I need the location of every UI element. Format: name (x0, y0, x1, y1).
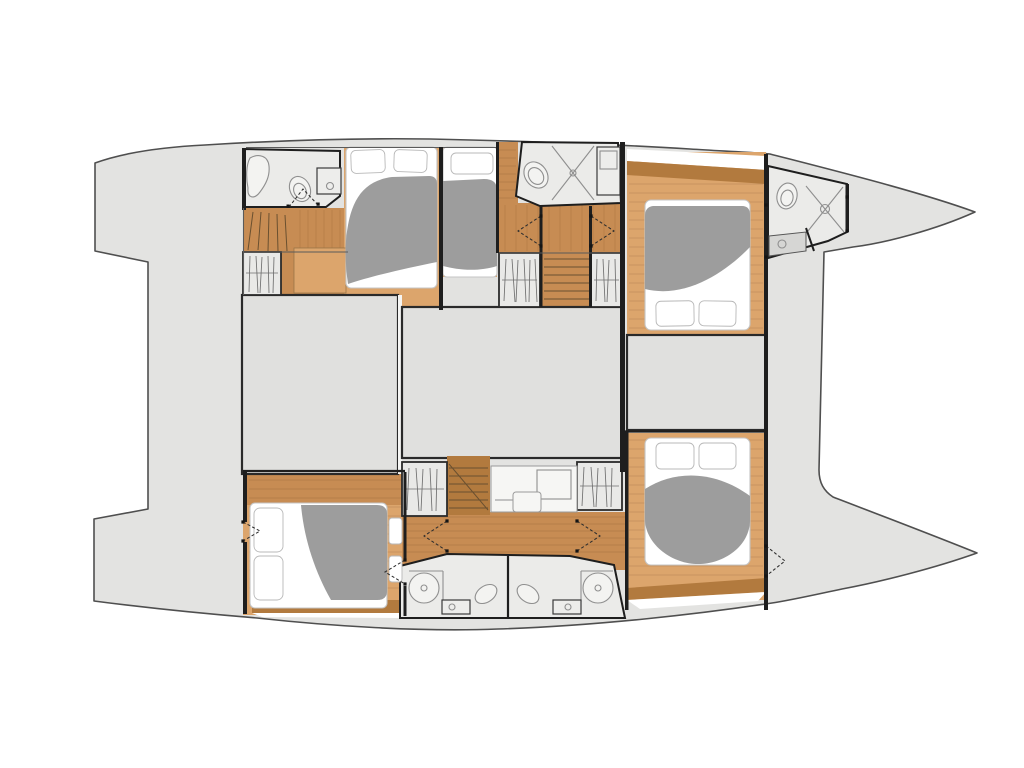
port-forward-cabin-bed (645, 200, 750, 330)
pillow (254, 556, 283, 600)
saloon-block-left (242, 295, 398, 474)
port-aft-chest (294, 248, 346, 293)
sink-icon (442, 600, 470, 614)
port-guest-cabin-1-bed (346, 147, 437, 288)
starboard-wardrobe-c (402, 462, 447, 516)
pillow (656, 301, 694, 327)
port-corridor-floor (497, 142, 518, 203)
sink-icon (317, 168, 341, 194)
port-wardrobe-b (591, 253, 622, 307)
starboard-forward-cabin-bed (645, 438, 750, 565)
pillow (351, 149, 386, 173)
sink-icon (553, 600, 581, 614)
vanity-desk (491, 466, 577, 512)
floor-plan-svg (0, 0, 1024, 768)
bedside-shelf (389, 518, 402, 544)
stool (513, 492, 541, 512)
port-cabin2-aft-floor (443, 277, 497, 310)
port-guest-cabin-2-bed (443, 147, 497, 277)
starboard-wardrobe-d (577, 462, 622, 510)
duvet (443, 179, 497, 270)
port-mid-bathroom (516, 142, 621, 206)
starboard-companionway-stairs (447, 456, 490, 515)
hull-inner-wall (764, 154, 768, 610)
starboard-bathrooms (400, 554, 625, 618)
saloon-block-center (402, 307, 622, 458)
port-aft-wardrobe (243, 252, 281, 295)
port-aft-bathroom (243, 149, 341, 207)
stbd-aft-cabin-shelf (243, 472, 405, 505)
pillow (699, 301, 736, 327)
pillow (394, 149, 428, 172)
starboard-aft-cabin-bed (250, 503, 402, 608)
shower-icon (409, 573, 439, 603)
pillow (451, 153, 493, 174)
port-wardrobe-a (499, 253, 540, 307)
pillow (699, 443, 736, 469)
saloon-block-right (627, 335, 766, 430)
catamaran-floor-plan (0, 0, 1024, 768)
shower-icon (583, 573, 613, 603)
cabin-divider-wall (439, 147, 443, 310)
pillow (656, 443, 694, 469)
